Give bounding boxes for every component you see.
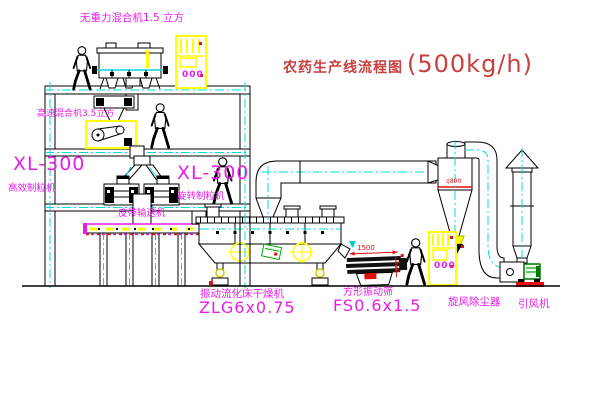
label-high-speed-mixer: 高速混合机3.5立方	[37, 110, 114, 119]
fluid-bed-dryer	[196, 204, 356, 285]
cabinet2-display: 000	[434, 261, 456, 271]
title-capacity: (500kg/h)	[407, 50, 533, 78]
label-screen-model: FS0.6x1.5	[333, 298, 421, 314]
label-fan-name: 引风机	[518, 299, 550, 310]
induced-draft-fan	[500, 262, 544, 287]
flow-arrow	[349, 241, 356, 248]
control-cabinet-1	[176, 36, 206, 88]
person-figure-floor2	[152, 104, 169, 147]
cabinet1-display: 000	[182, 70, 204, 80]
dim-screen-height: 550	[393, 261, 399, 272]
label-cyclone-name: 旋风除尘器	[448, 297, 501, 308]
label-granulator-left-name: 高效制粒机	[8, 184, 56, 194]
dim-screen-length: 1500	[357, 245, 375, 252]
control-cabinet-2	[429, 232, 456, 285]
label-granulator-right-name: 旋转制粒机	[177, 192, 225, 202]
label-dryer-model: ZLG6x0.75	[199, 300, 296, 316]
title-chinese: 农药生产线流程图	[283, 57, 403, 77]
person-figure-roof	[74, 47, 91, 90]
dim-cyclone-diameter: ¢800	[446, 179, 461, 185]
label-belt-conveyor: 皮带输送机	[118, 209, 166, 219]
diagram-title: 农药生产线流程图 (500kg/h)	[283, 50, 533, 78]
label-granulator-right-model: XL-300	[177, 164, 249, 183]
flow-diagram-page: 农药生产线流程图 (500kg/h) 无重力混合机1.5 立方 高速混合机3.5…	[0, 0, 600, 403]
label-granulator-left-model: XL-300	[13, 155, 85, 174]
feed-pipe-yellow	[146, 50, 149, 68]
dryer-exhaust-duct	[256, 161, 441, 220]
label-gravity-mixer: 无重力混合机1.5 立方	[80, 13, 184, 24]
person-figure-ground	[407, 239, 425, 284]
